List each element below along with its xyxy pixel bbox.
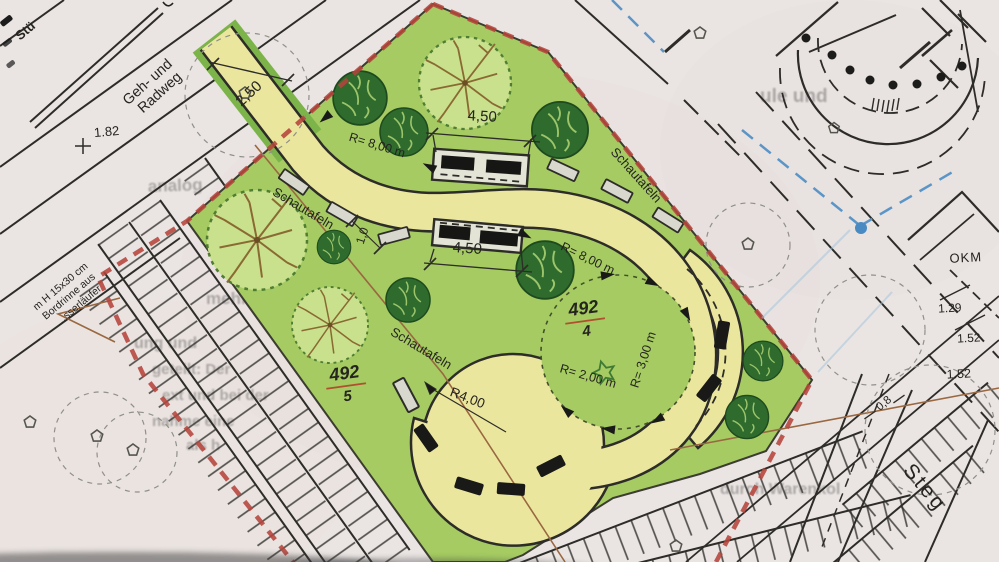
elevation-1-52-a: 1.52 — [957, 330, 981, 345]
bleed-fragment: ule und — [760, 86, 828, 107]
elevation-1-52-b: 1.52 — [946, 366, 971, 381]
dim-4-50-top: 4,50 — [467, 107, 497, 126]
elevation-cross — [75, 138, 91, 154]
elevation-1-82: 1.82 — [93, 123, 120, 140]
hydrant-dot — [855, 222, 867, 234]
label-geh-radweg: Geh- und Radweg — [120, 54, 189, 121]
display-structure-top — [420, 148, 529, 186]
elevation-1-29: 1.29 — [938, 300, 962, 315]
parcel-5-number: 492 — [327, 361, 361, 385]
label-okm: OKM — [949, 249, 982, 266]
scanned-site-plan: analog wie mehr ung und geteilt: Der ext… — [0, 0, 999, 562]
parcel-4-number: 492 — [566, 296, 600, 320]
site-plan-svg: analog wie mehr ung und geteilt: Der ext… — [0, 0, 999, 562]
dim-4-50-mid: 4,50 — [452, 239, 482, 258]
